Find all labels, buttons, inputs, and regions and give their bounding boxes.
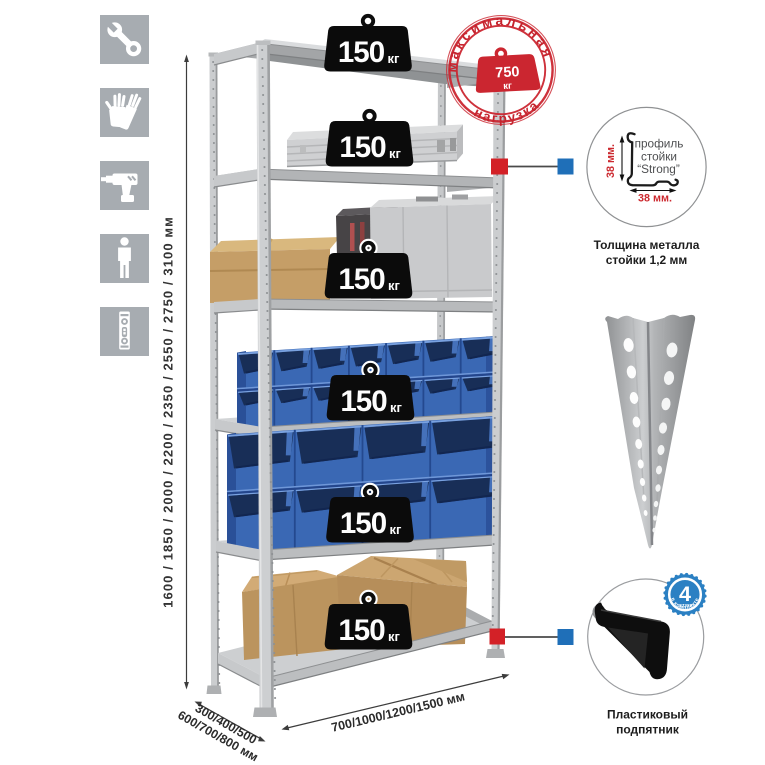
- svg-text:кг: кг: [390, 522, 403, 537]
- svg-text:150: 150: [340, 385, 387, 418]
- svg-text:кг: кг: [389, 146, 402, 161]
- svg-text:150: 150: [338, 36, 385, 69]
- svg-text:38 мм.: 38 мм.: [605, 144, 617, 178]
- svg-text:Пластиковый: Пластиковый: [607, 708, 688, 722]
- svg-text:кг: кг: [388, 51, 401, 66]
- svg-text:“Strong”: “Strong”: [637, 162, 680, 176]
- svg-text:750: 750: [495, 64, 520, 81]
- svg-text:1600 / 1850 / 2000 / 2200 / 23: 1600 / 1850 / 2000 / 2200 / 2350 / 2550 …: [161, 216, 176, 608]
- svg-text:подпятник: подпятник: [616, 723, 680, 737]
- svg-text:кг: кг: [388, 278, 401, 293]
- svg-text:кг: кг: [390, 400, 403, 415]
- svg-text:стойки 1,2 мм: стойки 1,2 мм: [606, 253, 688, 267]
- svg-text:150: 150: [340, 507, 387, 540]
- svg-text:кг: кг: [503, 81, 512, 92]
- svg-text:38 мм.: 38 мм.: [638, 193, 672, 205]
- svg-text:профиль: профиль: [635, 137, 684, 151]
- svg-text:150: 150: [339, 131, 386, 164]
- svg-text:150: 150: [338, 263, 385, 296]
- svg-text:Толщина металла: Толщина металла: [594, 238, 700, 252]
- svg-text:кг: кг: [388, 629, 401, 644]
- svg-text:150: 150: [338, 614, 385, 647]
